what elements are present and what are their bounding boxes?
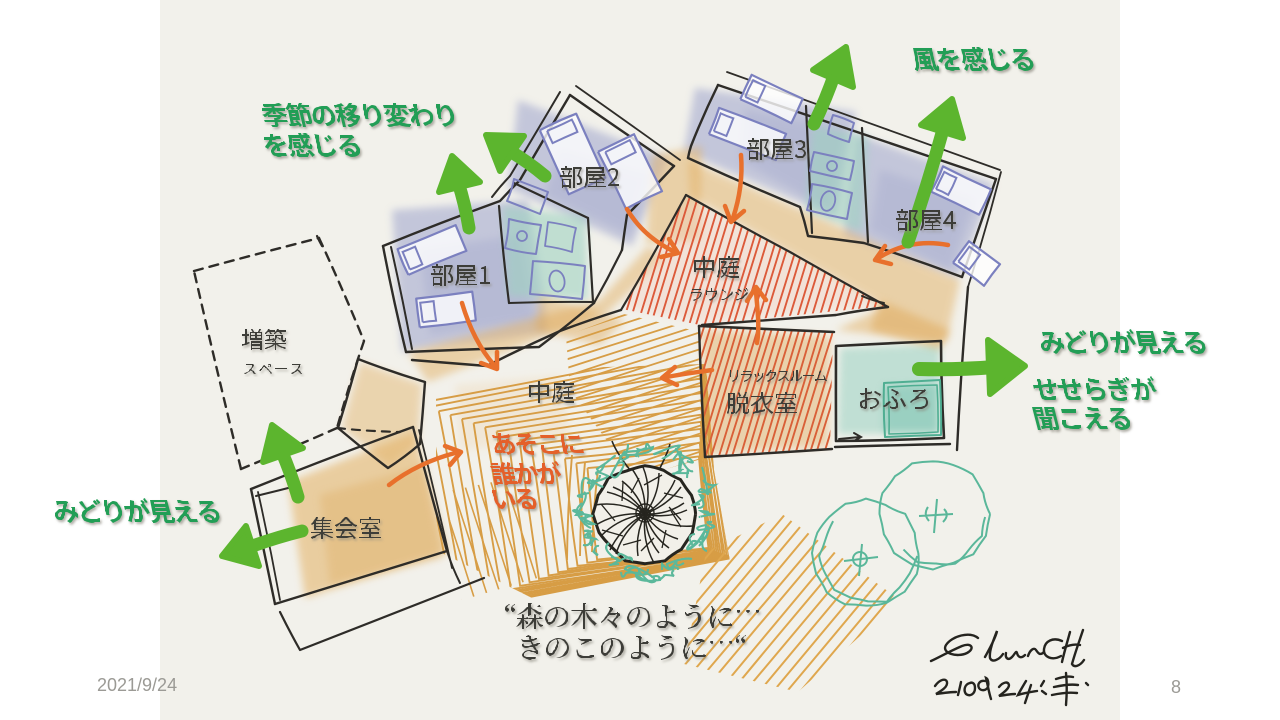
svg-text:8: 8 (1171, 677, 1181, 697)
svg-text:2021/9/24: 2021/9/24 (97, 675, 177, 695)
